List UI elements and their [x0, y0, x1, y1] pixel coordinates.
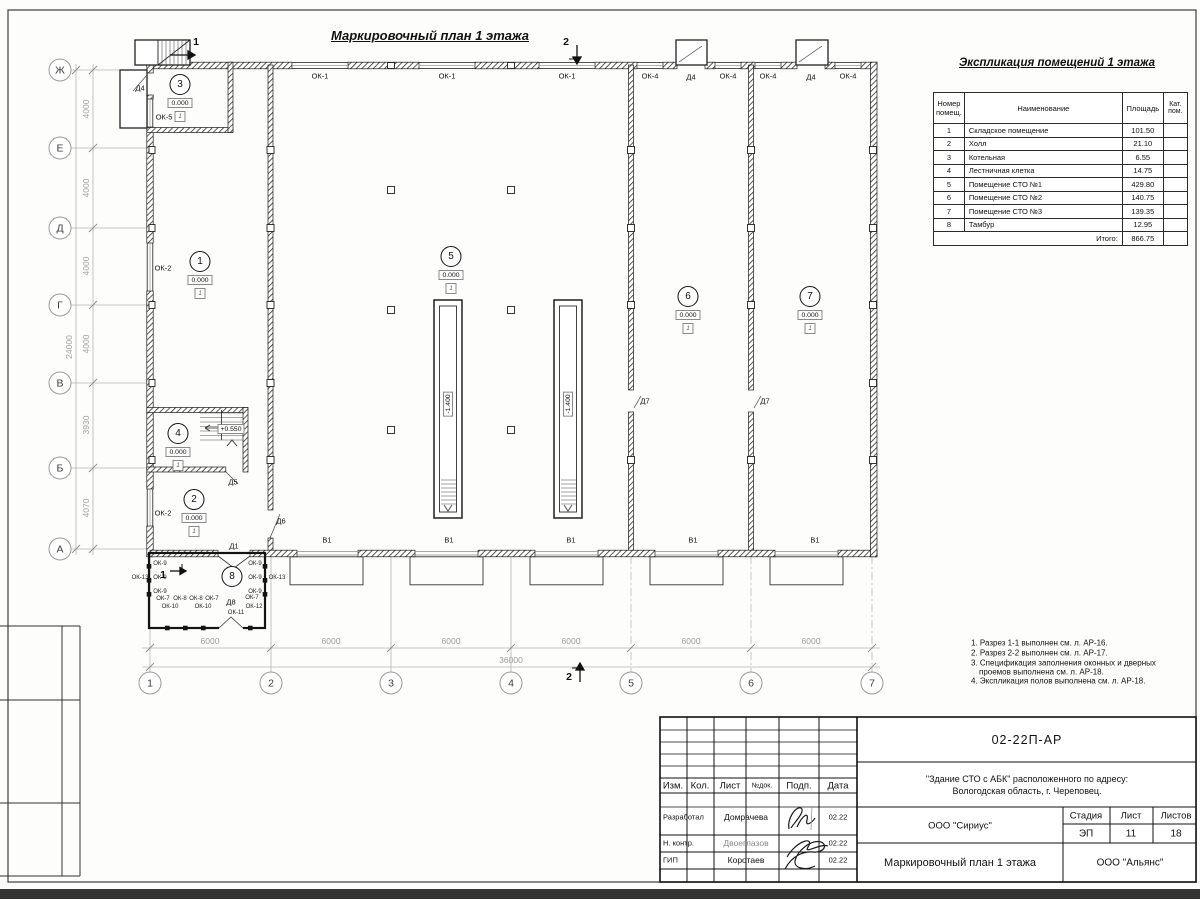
axis-bubble: 3	[380, 672, 403, 695]
axis-bubble: 1	[139, 672, 162, 695]
stage-label: Стадия	[1070, 811, 1102, 822]
opening-mark-small: ОК-8	[189, 596, 203, 602]
opening-mark: В1	[810, 536, 819, 545]
note-line: 2. Разрез 2-2 выполнен см. л. АР-17.	[971, 649, 1108, 658]
room-number: 8	[222, 566, 243, 587]
role-developer: Разработал	[663, 813, 704, 822]
room-name-cell: Помещение СТО №3	[964, 205, 1122, 219]
dimension-label: 4000	[81, 257, 91, 276]
axis-bubble: Е	[49, 137, 72, 160]
dimension-label: 6000	[562, 636, 581, 646]
explication-row: 3 Котельная 6.55	[934, 151, 1188, 165]
room-name-cell: Помещение СТО №2	[964, 191, 1122, 205]
axis-bubble: 7	[861, 672, 884, 695]
name-gip: Коротаев	[728, 855, 765, 865]
room-name-cell: Холл	[964, 137, 1122, 151]
floor-type-mark: 1	[445, 283, 456, 294]
room-mark: 7 0.000 1	[797, 286, 822, 334]
project-name-line2: Вологодская область, г. Череповец.	[952, 786, 1101, 796]
axis-bubble: 5	[620, 672, 643, 695]
drawing-sheet: Маркировочный план 1 этажа ЖЕДГВБА123456…	[0, 0, 1200, 900]
dimension-label: 4070	[81, 499, 91, 518]
room-elevation: 0.000	[165, 447, 190, 457]
floor-type-mark: 1	[172, 460, 183, 471]
axis-bubble: В	[49, 372, 72, 395]
room-area-cell: 139.35	[1122, 205, 1163, 219]
opening-mark: Д7	[640, 397, 649, 406]
opening-mark-small: ОК-9	[153, 561, 167, 567]
axis-bubble: Д	[49, 217, 72, 240]
axis-bubble: 6	[740, 672, 763, 695]
section-number: 1	[160, 569, 166, 581]
dimension-label: 6000	[682, 636, 701, 646]
opening-mark: ОК-4	[720, 72, 737, 81]
axis-bubble: Ж	[49, 59, 72, 82]
opening-mark-small: ОК-7	[205, 596, 219, 602]
opening-mark: Д1	[229, 542, 238, 551]
opening-mark-small: ОК-13	[132, 575, 149, 581]
explication-title: Экспликация помещений 1 этажа	[959, 57, 1155, 69]
explication-row: 5 Помещение СТО №1 429.80	[934, 178, 1188, 192]
room-number-cell: 6	[934, 191, 965, 205]
axis-bubble: А	[49, 538, 72, 561]
room-name-cell: Лестничная клетка	[964, 164, 1122, 178]
dimension-label: 4000	[81, 100, 91, 119]
room-number: 7	[799, 286, 820, 307]
explication-row: 2 Холл 21.10	[934, 137, 1188, 151]
opening-mark-small: ОК-10	[162, 604, 179, 610]
room-elevation: 0.000	[797, 310, 822, 320]
room-number-cell: 2	[934, 137, 965, 151]
section-number: 2	[563, 36, 569, 48]
col-header-name: Наименование	[964, 93, 1122, 124]
col-header-area: Площадь	[1122, 93, 1163, 124]
dimension-label: 4000	[81, 335, 91, 354]
col-ndok: №док.	[752, 783, 773, 790]
room-category-cell	[1163, 205, 1187, 219]
opening-mark: Д4	[135, 84, 144, 93]
explication-row: 4 Лестничная клетка 14.75	[934, 164, 1188, 178]
col-izm: Изм.	[663, 781, 683, 792]
room-area-cell: 101.50	[1122, 124, 1163, 138]
role-gip: ГИП	[663, 856, 678, 865]
opening-mark: ОК-4	[840, 72, 857, 81]
opening-mark: В1	[688, 536, 697, 545]
name-ncontrol: Двоеглазов	[723, 838, 768, 848]
sheets-label: Листов	[1161, 811, 1192, 822]
section-number: 2	[566, 671, 572, 683]
room-category-cell	[1163, 191, 1187, 205]
scan-edge-shadow	[0, 889, 1200, 899]
dimension-label: 3930	[81, 416, 91, 435]
opening-mark-small: ОК-13	[269, 575, 286, 581]
opening-mark-small: ОК-10	[195, 604, 212, 610]
room-mark: 3 0.000 1	[167, 74, 192, 122]
opening-mark: В1	[566, 536, 575, 545]
room-elevation: 0.000	[675, 310, 700, 320]
room-mark: 4 0.000 1	[165, 423, 190, 471]
room-area-cell: 12.95	[1122, 218, 1163, 232]
room-mark: 8	[222, 566, 243, 587]
explication-table: Номер помещ. Наименование Площадь Кат. п…	[933, 92, 1188, 246]
elevation-mark: +0.550	[218, 424, 245, 434]
date-developer: 02.22	[829, 813, 848, 822]
note-line: 3. Спецификация заполнения оконных и две…	[971, 659, 1156, 668]
elevation-mark: -1.400	[443, 391, 453, 416]
opening-mark-small: ОК-9	[248, 575, 262, 581]
explication-total-row: Итого: 866.75	[934, 232, 1188, 246]
dimension-label: 36000	[499, 655, 523, 665]
name-developer: Домрачева	[724, 812, 768, 822]
opening-mark: Д8	[226, 598, 235, 607]
col-kol: Кол.	[691, 781, 710, 792]
opening-mark-small: ОК-9	[248, 561, 262, 567]
dimension-label: 6000	[442, 636, 461, 646]
opening-mark-small: ОК-11	[228, 610, 244, 616]
room-name-cell: Тамбур	[964, 218, 1122, 232]
col-list: Лист	[720, 781, 741, 792]
project-name-line1: "Здание СТО с АБК" расположенного по адр…	[926, 774, 1128, 784]
room-number-cell: 3	[934, 151, 965, 165]
room-mark: 2 0.000 1	[181, 489, 206, 537]
plan-title: Маркировочный план 1 этажа	[331, 28, 529, 43]
opening-mark: В1	[322, 536, 331, 545]
opening-mark: Д7	[760, 397, 769, 406]
floor-type-mark: 1	[194, 288, 205, 299]
opening-mark-small: ОК-9	[153, 589, 167, 595]
opening-mark-small: ОК-7	[245, 595, 259, 601]
dimension-label: 4000	[81, 179, 91, 198]
section-number: 1	[193, 36, 199, 48]
room-area-cell: 429.80	[1122, 178, 1163, 192]
sheet-value: 11	[1126, 829, 1136, 840]
axis-bubble: 2	[260, 672, 283, 695]
room-number: 4	[167, 423, 188, 444]
opening-mark: ОК-4	[760, 72, 777, 81]
opening-mark: ОК-1	[439, 72, 456, 81]
total-label: Итого:	[934, 232, 1123, 246]
floor-type-mark: 1	[682, 323, 693, 334]
floor-type-mark: 1	[804, 323, 815, 334]
col-header-number: Номер помещ.	[934, 93, 965, 124]
room-name-cell: Складское помещение	[964, 124, 1122, 138]
note-line: 4. Экспликация полов выполнена см. л. АР…	[971, 677, 1145, 686]
opening-mark: ОК-4	[642, 72, 659, 81]
role-ncontrol: Н. контр.	[663, 839, 694, 848]
room-category-cell	[1163, 178, 1187, 192]
opening-mark: ОК-2	[155, 264, 172, 273]
opening-mark: Д4	[686, 73, 695, 82]
opening-mark: Д4	[806, 73, 815, 82]
room-number: 1	[189, 251, 210, 272]
col-podp: Подп.	[786, 781, 811, 792]
room-elevation: 0.000	[181, 513, 206, 523]
opening-mark: В1	[444, 536, 453, 545]
room-area-cell: 140.75	[1122, 191, 1163, 205]
room-number: 3	[169, 74, 190, 95]
room-number-cell: 4	[934, 164, 965, 178]
total-area: 866.75	[1122, 232, 1163, 246]
opening-mark: Д5	[228, 478, 237, 487]
explication-row: 6 Помещение СТО №2 140.75	[934, 191, 1188, 205]
room-name-cell: Помещение СТО №1	[964, 178, 1122, 192]
titleblock-drawing-title: Маркировочный план 1 этажа	[884, 857, 1036, 869]
room-number-cell: 1	[934, 124, 965, 138]
col-data: Дата	[827, 781, 848, 792]
room-elevation: 0.000	[187, 275, 212, 285]
room-category-cell	[1163, 151, 1187, 165]
room-mark: 6 0.000 1	[675, 286, 700, 334]
date-gip: 02.22	[829, 856, 848, 865]
floor-type-mark: 1	[174, 111, 185, 122]
elevation-mark: -1.400	[563, 391, 573, 416]
room-mark: 5 0.000 1	[438, 246, 463, 294]
opening-mark-small: ОК-8	[173, 596, 187, 602]
opening-mark: ОК-2	[155, 509, 172, 518]
room-mark: 1 0.000 1	[187, 251, 212, 299]
room-number-cell: 8	[934, 218, 965, 232]
explication-row: 1 Складское помещение 101.50	[934, 124, 1188, 138]
dimension-label: 6000	[802, 636, 821, 646]
room-category-cell	[1163, 137, 1187, 151]
note-line: проемов выполнена см. л. АР-18.	[979, 668, 1104, 677]
room-number: 5	[440, 246, 461, 267]
dimension-label: 6000	[201, 636, 220, 646]
explication-row: 8 Тамбур 12.95	[934, 218, 1188, 232]
designer-org: ООО "Сириус"	[928, 821, 992, 832]
date-ncontrol: 02.22	[829, 839, 848, 848]
explication-header-row: Номер помещ. Наименование Площадь Кат. п…	[934, 93, 1188, 124]
sheet-label: Лист	[1121, 811, 1142, 822]
note-line: 1. Разрез 1-1 выполнен см. л. АР-16.	[971, 639, 1108, 648]
room-elevation: 0.000	[167, 98, 192, 108]
room-number: 2	[183, 489, 204, 510]
opening-mark-small: ОК-7	[156, 596, 170, 602]
floor-type-mark: 1	[188, 526, 199, 537]
room-name-cell: Котельная	[964, 151, 1122, 165]
explication-row: 7 Помещение СТО №3 139.35	[934, 205, 1188, 219]
col-header-category: Кат. пом.	[1163, 93, 1187, 124]
axis-bubble: Г	[49, 294, 72, 317]
room-area-cell: 6.55	[1122, 151, 1163, 165]
dimension-label: 6000	[322, 636, 341, 646]
contractor-org: ООО "Альянс"	[1097, 858, 1164, 869]
sheets-value: 18	[1170, 829, 1181, 840]
room-area-cell: 21.10	[1122, 137, 1163, 151]
opening-mark: ОК-1	[312, 72, 329, 81]
dimension-label: 24000	[64, 335, 74, 359]
room-elevation: 0.000	[438, 270, 463, 280]
opening-mark-small: ОК-12	[246, 604, 263, 610]
opening-mark: ОК-1	[559, 72, 576, 81]
room-number-cell: 5	[934, 178, 965, 192]
room-category-cell	[1163, 164, 1187, 178]
room-number-cell: 7	[934, 205, 965, 219]
axis-bubble: 4	[500, 672, 523, 695]
room-category-cell	[1163, 218, 1187, 232]
room-category-cell	[1163, 124, 1187, 138]
axis-bubble: Б	[49, 457, 72, 480]
opening-mark: Д6	[276, 517, 285, 526]
explication-body: 1 Складское помещение 101.50 2 Холл 21.1…	[934, 124, 1188, 232]
stage-value: ЭП	[1079, 829, 1093, 840]
room-number: 6	[677, 286, 698, 307]
doc-number: 02-22П-АР	[992, 733, 1063, 747]
room-area-cell: 14.75	[1122, 164, 1163, 178]
